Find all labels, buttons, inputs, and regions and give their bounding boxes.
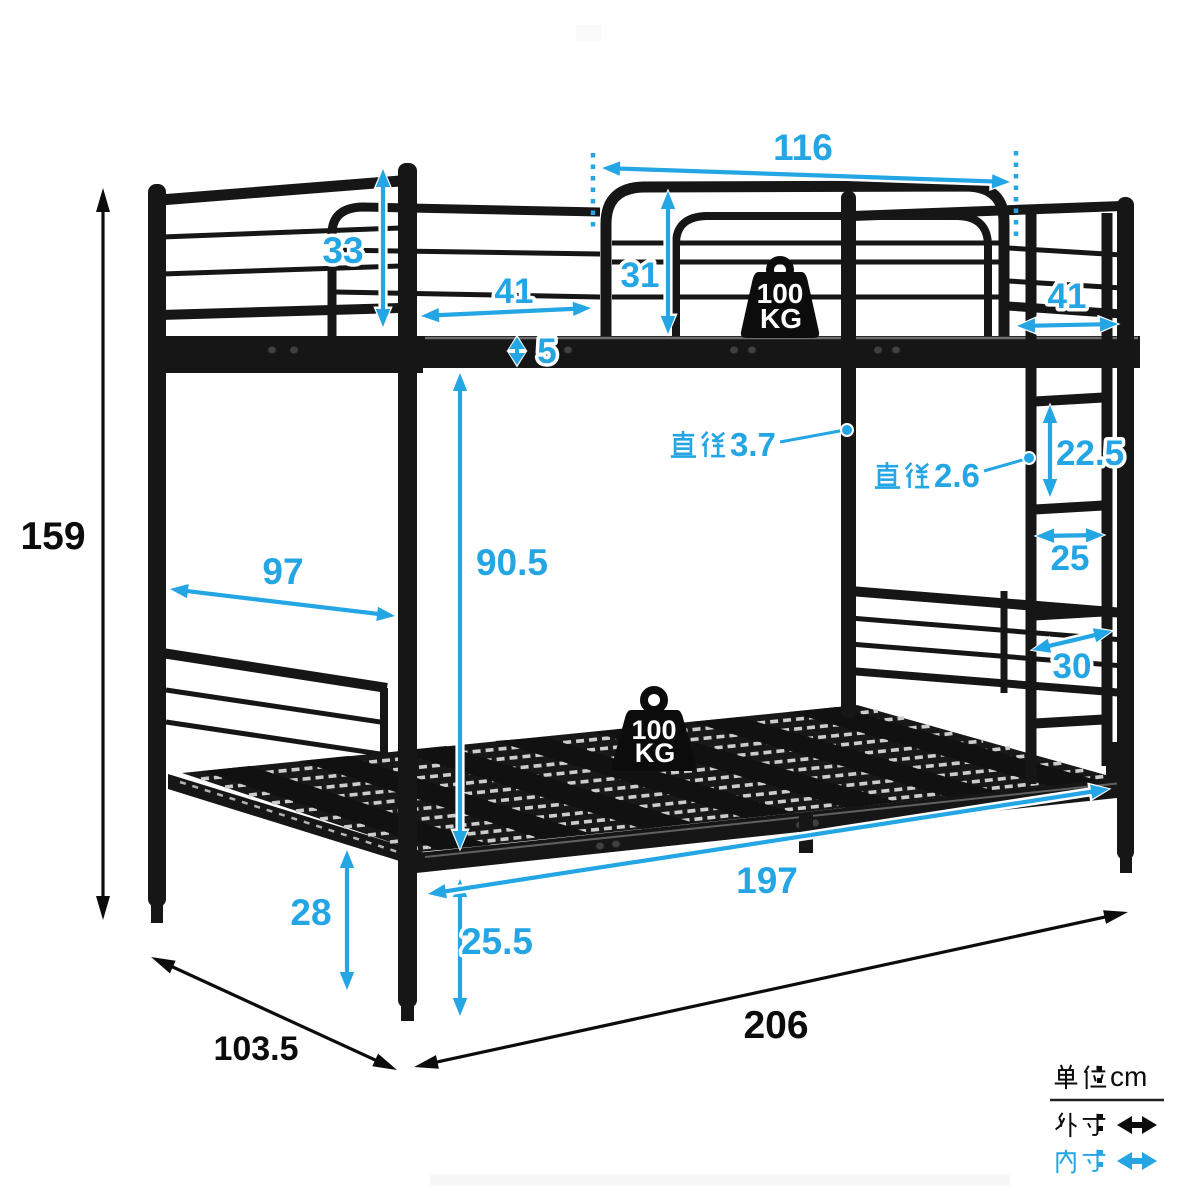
svg-text:206: 206 — [743, 1004, 808, 1047]
svg-text:25: 25 — [1051, 539, 1090, 578]
svg-text:5: 5 — [537, 332, 556, 371]
svg-text:28: 28 — [290, 892, 331, 933]
svg-text:97: 97 — [262, 551, 303, 592]
svg-text:30: 30 — [1053, 647, 1092, 686]
svg-text:159: 159 — [20, 515, 85, 558]
svg-text:3.7: 3.7 — [730, 426, 776, 463]
svg-text:90.5: 90.5 — [476, 542, 548, 583]
svg-text:33: 33 — [322, 230, 363, 271]
svg-text:41: 41 — [495, 272, 534, 311]
svg-text:31: 31 — [621, 256, 660, 295]
svg-text:cm: cm — [1110, 1061, 1147, 1092]
svg-text:25.5: 25.5 — [461, 921, 533, 962]
svg-text:197: 197 — [736, 860, 798, 901]
svg-text:KG: KG — [635, 738, 676, 768]
svg-text:2.6: 2.6 — [934, 457, 980, 494]
svg-text:116: 116 — [773, 127, 833, 168]
svg-text:103.5: 103.5 — [213, 1030, 298, 1068]
svg-text:22.5: 22.5 — [1056, 434, 1124, 473]
svg-text:41: 41 — [1048, 277, 1087, 316]
svg-text:KG: KG — [760, 303, 802, 334]
